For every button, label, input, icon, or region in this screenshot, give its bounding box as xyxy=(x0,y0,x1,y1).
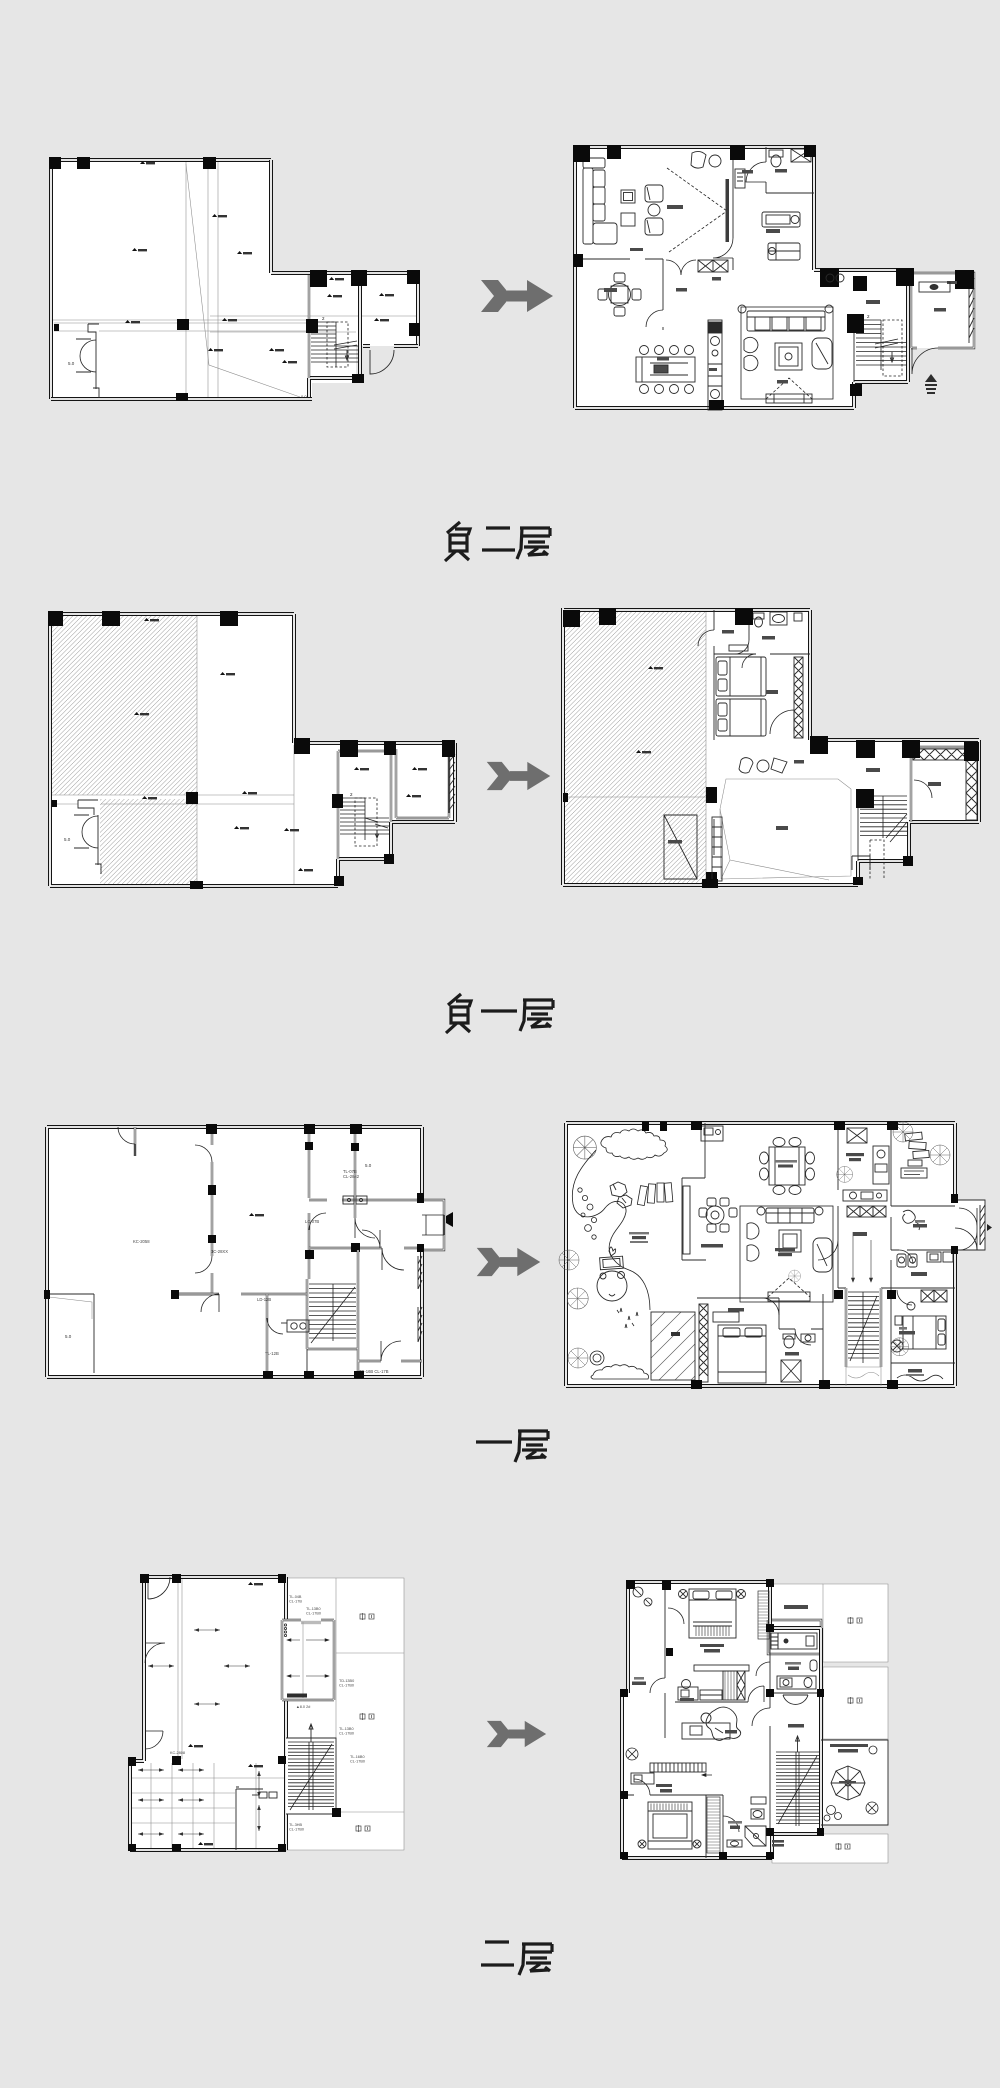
svg-text:KC-2058: KC-2058 xyxy=(133,1239,150,1244)
svg-text:5.0: 5.0 xyxy=(365,1163,372,1168)
svg-text:TL-3HB: TL-3HB xyxy=(289,1823,303,1827)
svg-text:TL-16B0: TL-16B0 xyxy=(350,1755,365,1759)
svg-text:TL-04B: TL-04B xyxy=(289,1595,302,1599)
svg-text:5.0: 5.0 xyxy=(64,837,71,842)
svg-text:KC-2808: KC-2808 xyxy=(170,1751,185,1755)
svg-text:CL-17B0: CL-17B0 xyxy=(306,1612,321,1616)
svg-text:CL-17B: CL-17B xyxy=(289,1600,302,1604)
svg-text:1C-28XX: 1C-28XX xyxy=(211,1249,228,1254)
svg-text:CL-17B0: CL-17B0 xyxy=(339,1732,354,1736)
svg-text:5.0: 5.0 xyxy=(65,1334,72,1339)
svg-text:LC-07B: LC-07B xyxy=(305,1219,319,1224)
svg-text:TL-13B0: TL-13B0 xyxy=(339,1727,354,1731)
svg-text:TL-12B: TL-12B xyxy=(265,1351,279,1356)
svg-text:CL-17B0: CL-17B0 xyxy=(339,1684,354,1688)
svg-text:5.0: 5.0 xyxy=(68,361,75,366)
svg-text:▲8.0 2#: ▲8.0 2# xyxy=(296,1705,311,1709)
svg-text:TD-13B0: TD-13B0 xyxy=(339,1679,354,1683)
svg-text:LD-12B: LD-12B xyxy=(257,1297,271,1302)
svg-text:CL-2842: CL-2842 xyxy=(343,1174,360,1179)
svg-text:0.0: 0.0 xyxy=(301,394,307,399)
svg-text:TL-13B0: TL-13B0 xyxy=(306,1607,321,1611)
svg-text:CL-17B0: CL-17B0 xyxy=(289,1828,304,1832)
svg-text:CL-17B0: CL-17B0 xyxy=(350,1760,365,1764)
